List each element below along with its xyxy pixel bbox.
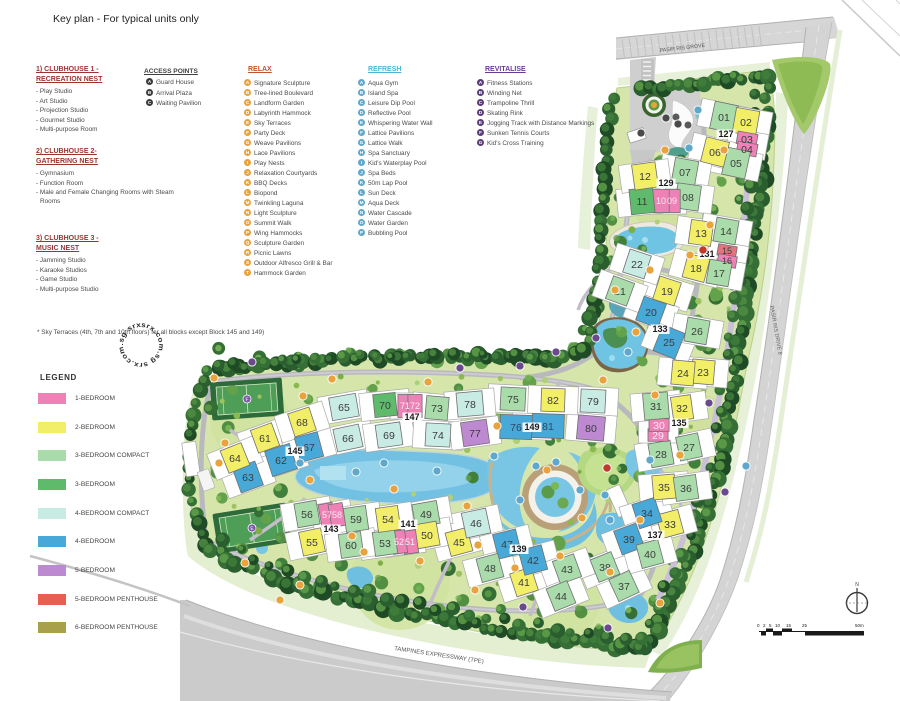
svg-text:145: 145 [287, 446, 302, 456]
svg-text:15: 15 [722, 246, 732, 256]
svg-text:55: 55 [306, 537, 318, 549]
svg-text:32: 32 [676, 403, 688, 415]
svg-text:46: 46 [470, 518, 482, 530]
svg-text:31: 31 [650, 401, 662, 413]
svg-text:01: 01 [718, 112, 730, 124]
svg-text:45: 45 [453, 537, 465, 549]
svg-text:09: 09 [667, 196, 677, 206]
svg-text:52: 52 [394, 537, 404, 547]
svg-text:48: 48 [484, 563, 496, 575]
svg-text:39: 39 [623, 534, 635, 546]
svg-text:135: 135 [671, 418, 686, 428]
svg-text:25: 25 [802, 623, 808, 628]
svg-text:18: 18 [690, 263, 702, 275]
svg-text:141: 141 [400, 519, 415, 529]
svg-text:73: 73 [431, 403, 443, 415]
svg-text:08: 08 [682, 192, 694, 204]
svg-text:51: 51 [405, 537, 415, 547]
svg-text:F: F [245, 397, 248, 403]
svg-text:143: 143 [323, 524, 338, 534]
svg-text:5: 5 [769, 623, 772, 628]
svg-text:70: 70 [379, 400, 391, 412]
svg-text:28: 28 [655, 449, 667, 461]
svg-text:53: 53 [379, 538, 391, 550]
svg-text:35: 35 [658, 482, 670, 494]
svg-text:17: 17 [713, 268, 725, 280]
svg-text:27: 27 [683, 442, 695, 454]
svg-text:65: 65 [338, 402, 350, 414]
svg-text:41: 41 [518, 577, 530, 589]
svg-text:60: 60 [345, 540, 357, 552]
svg-text:76: 76 [510, 422, 522, 434]
svg-text:58: 58 [332, 510, 342, 520]
svg-text:68: 68 [296, 417, 308, 429]
svg-text:22: 22 [631, 259, 643, 271]
svg-text:66: 66 [342, 433, 354, 445]
svg-text:10: 10 [775, 623, 781, 628]
svg-text:14: 14 [720, 226, 732, 238]
svg-text:78: 78 [464, 399, 476, 411]
svg-text:06: 06 [709, 147, 721, 159]
svg-text:62: 62 [275, 455, 287, 467]
svg-text:2: 2 [763, 623, 766, 628]
svg-text:57: 57 [322, 510, 332, 520]
svg-text:37: 37 [618, 581, 630, 593]
svg-text:71: 71 [400, 401, 410, 411]
svg-text:srx.com.sg srx.com.sg srx: srx.com.sg srx.com.sg srx [118, 322, 164, 368]
svg-text:77: 77 [469, 428, 481, 440]
svg-text:12: 12 [639, 171, 651, 183]
svg-text:N: N [855, 582, 859, 588]
svg-text:64: 64 [229, 453, 241, 465]
svg-text:33: 33 [664, 519, 676, 531]
svg-text:19: 19 [661, 286, 673, 298]
svg-text:50: 50 [421, 530, 433, 542]
svg-text:147: 147 [404, 412, 419, 422]
svg-text:80: 80 [585, 423, 597, 435]
svg-text:79: 79 [587, 396, 599, 408]
svg-text:127: 127 [718, 129, 733, 139]
svg-text:137: 137 [647, 530, 662, 540]
svg-text:36: 36 [680, 483, 692, 495]
svg-text:11: 11 [637, 196, 648, 208]
svg-text:67: 67 [303, 442, 315, 454]
svg-text:49: 49 [420, 509, 432, 521]
svg-text:56: 56 [301, 509, 313, 521]
svg-text:25: 25 [663, 337, 675, 349]
svg-text:42: 42 [527, 555, 539, 567]
svg-text:44: 44 [555, 591, 567, 603]
svg-text:82: 82 [547, 395, 559, 407]
svg-text:149: 149 [524, 422, 539, 432]
svg-text:129: 129 [658, 178, 673, 188]
svg-text:74: 74 [432, 430, 444, 442]
svg-text:59: 59 [350, 514, 362, 526]
svg-text:24: 24 [677, 368, 689, 380]
svg-text:0: 0 [757, 623, 760, 628]
svg-text:63: 63 [242, 472, 254, 484]
svg-text:02: 02 [740, 117, 752, 129]
svg-text:05: 05 [730, 158, 742, 170]
svg-text:43: 43 [561, 564, 573, 576]
svg-text:15: 15 [786, 623, 792, 628]
svg-text:40: 40 [644, 549, 656, 561]
svg-text:72: 72 [410, 401, 420, 411]
svg-text:54: 54 [382, 514, 394, 526]
svg-text:04: 04 [741, 144, 753, 156]
svg-text:50m: 50m [855, 623, 864, 628]
svg-text:23: 23 [697, 367, 709, 379]
svg-text:61: 61 [259, 433, 271, 445]
svg-text:07: 07 [679, 167, 691, 179]
svg-text:69: 69 [383, 430, 395, 442]
svg-text:26: 26 [691, 326, 703, 338]
svg-text:81: 81 [542, 421, 554, 433]
svg-text:20: 20 [645, 307, 657, 319]
svg-text:139: 139 [511, 544, 526, 554]
svg-text:10: 10 [656, 196, 666, 206]
svg-text:133: 133 [652, 324, 667, 334]
svg-text:30: 30 [653, 420, 665, 432]
svg-text:13: 13 [695, 228, 707, 240]
svg-text:75: 75 [507, 394, 519, 406]
svg-text:16: 16 [722, 256, 732, 266]
